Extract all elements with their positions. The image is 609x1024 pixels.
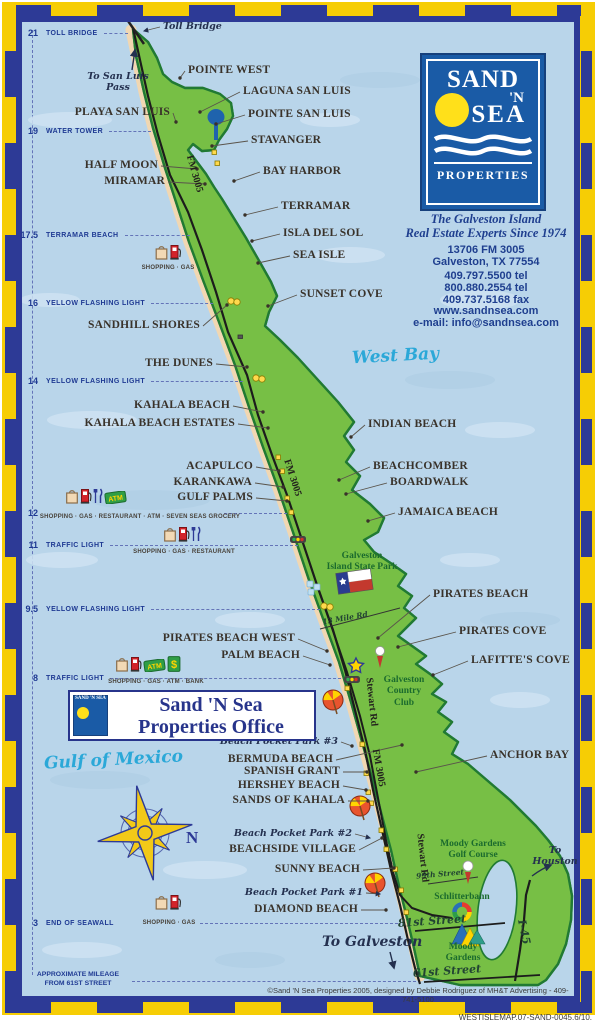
address: 13706 FM 3005 Galveston, TX 77554 xyxy=(398,244,574,268)
logo-word-sea: SEA xyxy=(428,101,538,131)
place-label-hershey-beach: HERSHEY BEACH xyxy=(238,780,340,792)
bag-icon xyxy=(66,489,79,504)
mile-label-water-tower: WATER TOWER xyxy=(46,128,103,135)
amenity-icons-shopping-gas-atm-bank xyxy=(116,655,181,672)
sun-icon xyxy=(435,93,469,127)
tagline: The Galveston Island Real Estate Experts… xyxy=(398,212,574,241)
office-banner: SAND 'N SEA Sand 'N Sea Properties Offic… xyxy=(68,690,316,741)
amenity-caption: SHOPPING · GAS · RESTAURANT xyxy=(133,549,235,555)
pump-icon xyxy=(131,655,142,672)
amenity-icons-shopping-gas-restaurant-atm-seven-seas-grocery xyxy=(66,487,127,504)
road-label-61st-street: 61st Street xyxy=(412,962,481,980)
mile-label-yellow-flashing-light: YELLOW FLASHING LIGHT xyxy=(46,378,145,385)
amenity-icons-shopping-gas xyxy=(155,893,181,910)
place-label-spanish-grant: SPANISH GRANT xyxy=(244,766,340,778)
mileage-footnote: APPROXIMATE MILEAGE FROM 61ST STREET xyxy=(24,971,132,989)
road-label-fm-3005: FM 3005 xyxy=(184,154,204,193)
place-label-karankawa: KARANKAWA xyxy=(174,477,252,489)
park-label-moody-gardens: Moody Gardens xyxy=(446,942,481,965)
mile-marker-3: 3 xyxy=(14,919,38,928)
bag-icon xyxy=(164,527,177,542)
place-label-terramar: TERRAMAR xyxy=(281,201,350,213)
script-label-beach-pocket-park-1: Beach Pocket Park #1 xyxy=(245,888,363,899)
park-label-galveston-country-club: Galveston Country Club xyxy=(384,675,425,709)
sun-icon xyxy=(77,707,89,719)
place-label-bermuda-beach: BERMUDA BEACH xyxy=(228,754,333,766)
place-label-diamond-beach: DIAMOND BEACH xyxy=(254,904,358,916)
mile-dash xyxy=(110,545,298,546)
pump-icon xyxy=(179,525,190,542)
water-label-gulf-of-mexico: Gulf of Mexico xyxy=(44,748,184,772)
place-label-kahala-beach: KAHALA BEACH xyxy=(134,400,230,412)
mile-dash xyxy=(151,609,320,610)
place-label-half-moon: HALF MOON xyxy=(85,160,158,172)
place-label-palm-beach: PALM BEACH xyxy=(221,650,300,662)
amenity-icons-shopping-gas-restaurant xyxy=(164,525,201,542)
place-label-lafitte-s-cove: LAFITTE'S COVE xyxy=(471,655,570,667)
mile-marker-12: 12 xyxy=(14,509,38,518)
logo-word-properties: PROPERTIES xyxy=(428,168,538,183)
fork-icon xyxy=(192,526,201,542)
mile-dash xyxy=(125,235,190,236)
place-label-bay-harbor: BAY HARBOR xyxy=(263,166,341,178)
email: e-mail: info@sandnsea.com xyxy=(398,317,574,329)
pump-icon xyxy=(170,243,181,260)
place-label-anchor-bay: ANCHOR BAY xyxy=(490,750,569,762)
place-label-sunset-cove: SUNSET COVE xyxy=(300,289,383,301)
mile-marker-17.5: 17.5 xyxy=(14,231,38,240)
mile-marker-14: 14 xyxy=(14,377,38,386)
place-label-pointe-san-luis: POINTE SAN LUIS xyxy=(248,109,351,121)
mile-label-yellow-flashing-light: YELLOW FLASHING LIGHT xyxy=(46,606,145,613)
mile-marker-19: 19 xyxy=(14,127,38,136)
place-label-sandhill-shores: SANDHILL SHORES xyxy=(88,320,200,332)
place-label-pirates-cove: PIRATES COVE xyxy=(459,626,547,638)
place-label-sunny-beach: SUNNY BEACH xyxy=(275,864,360,876)
mile-marker-9.5: 9.5 xyxy=(14,605,38,614)
place-label-pirates-beach-west: PIRATES BEACH WEST xyxy=(163,633,295,645)
waves-icon xyxy=(433,133,533,159)
bag-icon xyxy=(116,657,129,672)
place-label-beachside-village: BEACHSIDE VILLAGE xyxy=(229,844,356,856)
place-label-gulf-palms: GULF PALMS xyxy=(177,492,253,504)
place-label-the-dunes: THE DUNES xyxy=(145,358,213,370)
script-label-beach-pocket-park-2: Beach Pocket Park #2 xyxy=(234,829,352,840)
mile-label-toll-bridge: TOLL BRIDGE xyxy=(46,30,98,37)
fork-icon xyxy=(94,488,103,504)
amenity-caption: SHOPPING · GAS xyxy=(143,920,196,926)
place-label-stavanger: STAVANGER xyxy=(251,135,321,147)
mile-marker-21: 21 xyxy=(14,29,38,38)
place-label-kahala-beach-estates: KAHALA BEACH ESTATES xyxy=(84,418,235,430)
website: www.sandnsea.com xyxy=(398,305,574,317)
atm-icon xyxy=(144,659,166,672)
script-label-to-galveston: To Galveston xyxy=(322,934,422,950)
script-label-toll-bridge: Toll Bridge xyxy=(163,22,222,33)
mile-label-traffic-light: TRAFFIC LIGHT xyxy=(46,542,104,549)
road-label-fm-3005: FM 3005 xyxy=(370,748,386,787)
pump-icon xyxy=(81,487,92,504)
place-label-miramar: MIRAMAR xyxy=(104,176,165,188)
place-label-beachcomber: BEACHCOMBER xyxy=(373,461,468,473)
place-label-sands-of-kahala: SANDS OF KAHALA xyxy=(233,795,345,807)
sandnsea-logo: SAND 'N SEA PROPERTIES xyxy=(420,53,546,211)
mile-dash xyxy=(200,923,398,924)
road-label-i-45: I-45 xyxy=(515,918,533,945)
bag-icon xyxy=(155,245,168,260)
map-poster: ATM $ xyxy=(0,0,609,1024)
compass-north-label: N xyxy=(186,828,198,848)
park-label-moody-gardens-golf-course: Moody Gardens Golf Course xyxy=(440,839,506,862)
amenity-caption: SHOPPING · GAS · ATM · BANK xyxy=(108,679,204,685)
amenity-caption: SHOPPING · GAS xyxy=(142,265,195,271)
park-label-schlitterbahn: Schlitterbahn xyxy=(434,892,489,903)
mile-dash xyxy=(151,381,243,382)
mile-label-yellow-flashing-light: YELLOW FLASHING LIGHT xyxy=(46,300,145,307)
script-label-to-houston: To Houston xyxy=(532,846,577,868)
place-label-sea-isle: SEA ISLE xyxy=(293,250,345,262)
dollar-icon xyxy=(168,656,181,672)
park-label-galveston-island-state-park: Galveston Island State Park xyxy=(327,551,398,574)
place-label-pirates-beach: PIRATES BEACH xyxy=(433,589,528,601)
place-label-jamaica-beach: JAMAICA BEACH xyxy=(398,507,498,519)
mile-dash xyxy=(151,303,213,304)
mile-dash xyxy=(109,131,151,132)
bag-icon xyxy=(155,895,168,910)
phone-numbers: 409.797.5500 tel 800.880.2554 tel 409.73… xyxy=(398,270,574,306)
road-label-fm-3005: FM 3005 xyxy=(281,458,302,497)
pump-icon xyxy=(170,893,181,910)
office-banner-text: Sand 'N Sea Properties Office xyxy=(108,694,314,738)
amenity-icons-shopping-gas xyxy=(155,243,181,260)
office-banner-logo: SAND 'N SEA xyxy=(73,695,108,736)
road-label-stewart-rd: Stewart Rd xyxy=(363,677,378,726)
road-label-13-mile-rd: 13 Mile Rd xyxy=(322,610,369,627)
place-label-pointe-west: POINTE WEST xyxy=(188,65,270,77)
place-label-isla-del-sol: ISLA DEL SOL xyxy=(283,228,363,240)
water-label-west-bay: West Bay xyxy=(352,346,440,368)
mile-marker-8: 8 xyxy=(14,674,38,683)
place-label-acapulco: ACAPULCO xyxy=(186,461,253,473)
script-label-to-san-luis-pass: To San Luis Pass xyxy=(87,72,148,94)
place-label-boardwalk: BOARDWALK xyxy=(390,477,468,489)
map-code: WESTISLEMAP.07-SAND-0045.6/10. xyxy=(300,1013,592,1022)
credit-line: ©Sand 'N Sea Properties 2005, designed b… xyxy=(260,986,576,1004)
place-label-indian-beach: INDIAN BEACH xyxy=(368,419,456,431)
mile-label-terramar-beach: TERRAMAR BEACH xyxy=(46,232,119,239)
atm-icon xyxy=(105,491,127,504)
road-label-81st-street: 81st Street xyxy=(397,912,466,930)
place-label-laguna-san-luis: LAGUNA SAN LUIS xyxy=(243,86,351,98)
mile-dash xyxy=(104,33,128,34)
mile-marker-11: 11 xyxy=(14,541,38,550)
mile-marker-16: 16 xyxy=(14,299,38,308)
mile-label-traffic-light: TRAFFIC LIGHT xyxy=(46,675,104,682)
place-label-playa-san-luis: PLAYA SAN LUIS xyxy=(75,107,170,119)
mile-label-end-of-seawall: END OF SEAWALL xyxy=(46,920,114,927)
amenity-caption: SHOPPING · GAS · RESTAURANT · ATM · SEVE… xyxy=(40,514,240,520)
